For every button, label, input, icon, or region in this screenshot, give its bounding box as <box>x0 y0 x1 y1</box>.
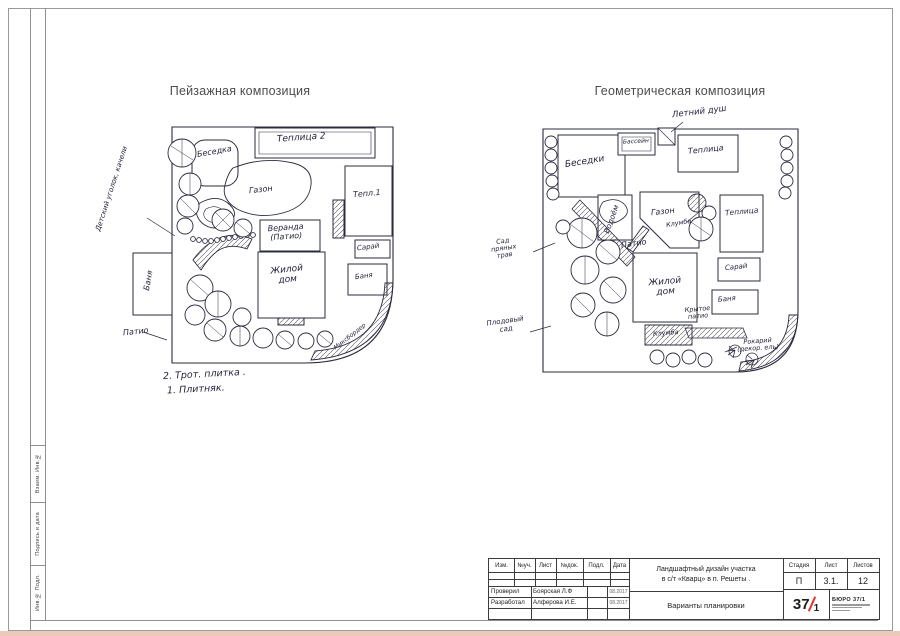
tb-sheet-value: 3.1. <box>815 572 847 589</box>
tb-sheet-name: Варианты планировки <box>630 592 782 618</box>
drawing-sheet: Взаим. Инв.№ Подпись и дата Инв.№ Подл. … <box>0 0 900 636</box>
margin-stamp-vzaim: Взаим. Инв.№ <box>31 445 44 502</box>
label-sad-pryanyh: Сад пряных трав <box>490 236 518 260</box>
margin-stamp-label: Подпись и дата <box>35 512 41 556</box>
margin-stamp-podpis: Подпись и дата <box>31 502 44 565</box>
page-edge-strip <box>0 631 900 636</box>
label-rokariy: Рокарий (декор. ель) <box>737 337 780 354</box>
bureau-logo: 37 1 <box>783 589 829 619</box>
left-plan: Беседка Теплица 2 Газон Тепл.1 Веранда (… <box>105 108 405 383</box>
tb-header-data: Дата <box>610 559 629 572</box>
tb-header-izm: Изм. <box>489 559 514 572</box>
bureau-info: БЮРО 37/1 <box>830 589 881 619</box>
margin-stamp-label: Инв.№ Подл. <box>35 574 41 611</box>
tb-name-razrabotal: Алферова И.Е. <box>532 597 588 608</box>
tb-stage-label: Стадия <box>783 559 815 572</box>
right-plan: Летний душ Бассейн Теплица Беседки Водоё… <box>485 100 805 380</box>
right-plan-title: Геометрическая композиция <box>570 84 790 98</box>
tb-project-line1: Ландшафтный дизайн участка <box>656 565 755 576</box>
frame-bottom-line <box>30 620 878 621</box>
tb-project-line2: в с/т «Кварц» в п. Решеты . <box>662 575 751 586</box>
tb-header-podl: Подл. <box>583 559 610 572</box>
tb-role-proveril: Проверил <box>490 586 532 597</box>
bureau-address-line <box>832 610 850 611</box>
bureau-name: БЮРО 37/1 <box>832 597 865 603</box>
tb-stage-value: П <box>783 572 815 589</box>
tb-sheets-value: 12 <box>847 572 879 589</box>
tb-role-razrabotal: Разработал <box>490 597 532 608</box>
label-dom: Жилой дом <box>270 264 305 287</box>
tb-name-proveril: Боярская Л.Ф <box>532 586 588 597</box>
title-block: Изм. №уч. Лист №док. Подл. Дата Проверил… <box>488 558 880 620</box>
tb-project-name: Ландшафтный дизайн участка в с/т «Кварц»… <box>630 559 782 591</box>
tb-header-dok: №док. <box>556 559 583 572</box>
bureau-address-line <box>832 604 870 605</box>
bureau-address-line <box>832 607 862 608</box>
tb-header-list: Лист <box>535 559 556 572</box>
tb-sheets-label: Листов <box>847 559 879 572</box>
label-veranda: Веранда (Патио) <box>267 223 304 243</box>
tb-header-uch: №уч. <box>514 559 535 572</box>
tb-date-proveril: 08.2017 <box>608 586 629 597</box>
left-plan-title: Пейзажная композиция <box>140 84 340 98</box>
label-krytoe-patio: Крытое патио <box>684 305 711 321</box>
tb-sheet-label: Лист <box>815 559 847 572</box>
label-bassein: Бассейн <box>623 138 649 146</box>
frame-inner-left-line <box>45 8 46 620</box>
tb-date-razrabotal: 08.2017 <box>608 597 629 608</box>
logo-1: 1 <box>814 603 820 614</box>
margin-stamp-inv: Инв.№ Подл. <box>31 565 44 620</box>
label-dom: Жилой дом <box>648 277 682 299</box>
margin-stamp-label: Взаим. Инв.№ <box>35 453 41 493</box>
